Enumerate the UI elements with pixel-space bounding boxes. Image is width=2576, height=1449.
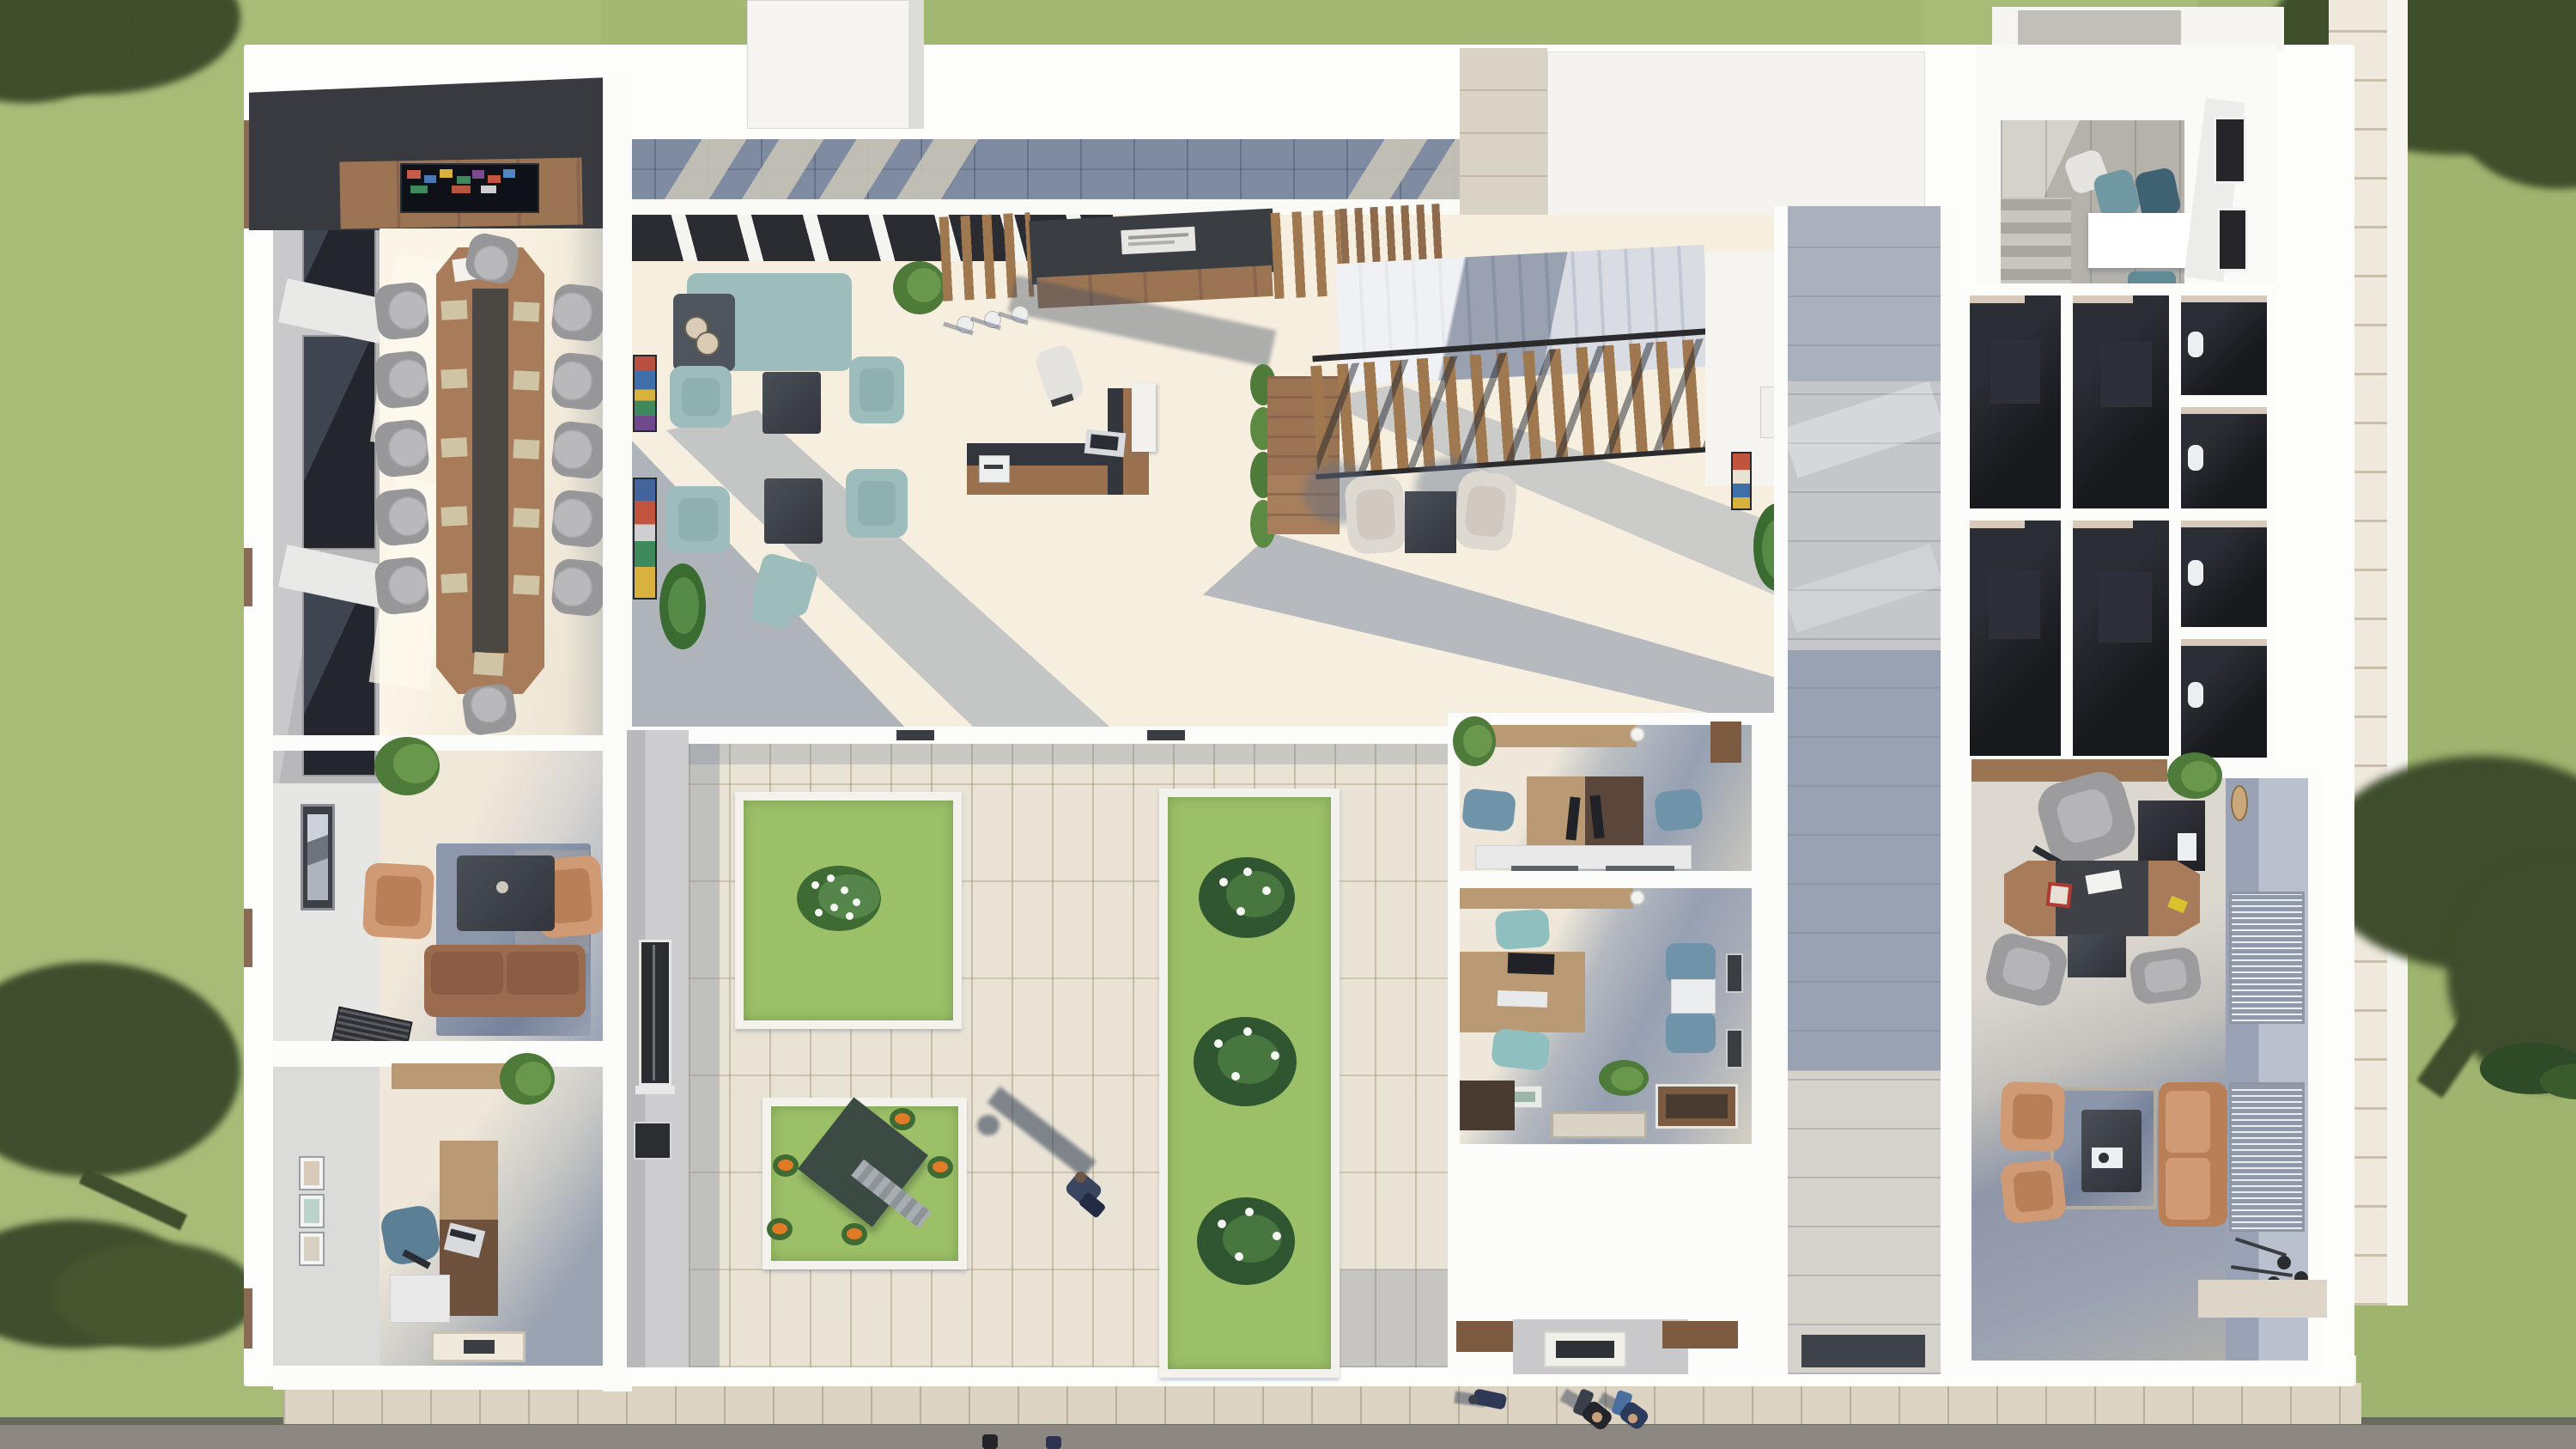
west-facade-wood-strip [244, 548, 252, 606]
office2-wood-beam [1460, 888, 1633, 909]
toilet [2188, 682, 2203, 708]
wall-frame-art [304, 1161, 319, 1185]
lily-petal [1218, 1220, 1226, 1228]
sofa-cushion [2166, 1158, 2210, 1220]
wall-frame-art [304, 1237, 319, 1261]
water-dispenser [2178, 833, 2196, 861]
office2-ac-front [1513, 1092, 1535, 1102]
dark-room-floor-sliver [2073, 295, 2133, 303]
daisy [811, 881, 819, 889]
conference-chair [550, 420, 607, 480]
dark-room-shelf [2100, 342, 2152, 407]
guest-chair-blue [1666, 943, 1716, 984]
roof-slab [747, 0, 923, 129]
dark-room-shelf [1989, 570, 2040, 639]
lily-petal [1243, 1027, 1252, 1036]
table-pad [440, 300, 467, 320]
lily-petal [1262, 886, 1271, 895]
flower-bloom-orange [933, 1161, 948, 1172]
wall-art [633, 355, 657, 432]
conference-chair [460, 682, 518, 737]
sofa-cushion [431, 952, 503, 995]
entry-mat-inner [464, 1340, 495, 1354]
wall-frame [1726, 953, 1743, 993]
mid-offices-wall [1460, 871, 1752, 888]
conference-chair [550, 351, 607, 411]
tv-thumbnail [488, 175, 501, 183]
wood-planter-box [1456, 1321, 1513, 1352]
table-pad [513, 439, 539, 460]
floor-plan-render [0, 0, 2576, 1449]
wall-frame-art [304, 1199, 319, 1223]
tree-shadow-left [52, 1242, 258, 1349]
pedestrian-head [1468, 1395, 1478, 1404]
lily-foliage [1226, 871, 1285, 917]
planter-soil [1666, 1094, 1728, 1118]
stairwell-window [2217, 208, 2248, 271]
office2-plant [1611, 1067, 1643, 1091]
courtyard-shade [689, 744, 720, 1367]
tv-thumbnail [472, 170, 484, 179]
armchair-tan-seat [2012, 1093, 2053, 1140]
conference-chair [374, 418, 430, 478]
daisy [853, 898, 860, 906]
wc-floor-sliver [2181, 295, 2267, 302]
tv-thumbnail [452, 186, 471, 193]
table-pad [513, 575, 539, 595]
table-pad [513, 301, 539, 322]
desk-tray [1498, 990, 1548, 1008]
west-window [302, 335, 376, 550]
printer-slot [984, 465, 1003, 469]
table-pad [440, 506, 467, 527]
table-lamp [696, 332, 720, 356]
tv-thumbnail [410, 186, 428, 193]
door-threshold [896, 730, 934, 740]
courtyard-wall-window [639, 940, 671, 1086]
office2-cabinet [1460, 1081, 1515, 1130]
pedestrian-partial [1046, 1436, 1061, 1449]
wall-conference-lounge [273, 735, 603, 751]
west-facade-wood-strip [244, 1288, 252, 1349]
dark-room-floor-sliver [2073, 521, 2133, 528]
lily-petal [1214, 1039, 1223, 1048]
corridor-mat [1801, 1335, 1925, 1367]
entry-mat [1551, 1111, 1647, 1139]
pedestrian-partial [982, 1434, 998, 1449]
sofa-cushion [507, 952, 579, 995]
table-pad [440, 437, 467, 458]
exec-exterior-tiles [2198, 1280, 2327, 1318]
wall-art [633, 478, 657, 600]
floor-lamp-base [2277, 1256, 2291, 1269]
toilet [2188, 445, 2203, 471]
corridor-east-wall [1941, 206, 1959, 1374]
pedestrian-head [1592, 1412, 1602, 1422]
office-chair-teal [1495, 909, 1551, 950]
table-pad [513, 508, 539, 528]
conference-table-channel [472, 289, 508, 653]
window-sill [635, 1086, 675, 1094]
window-blinds [2229, 1082, 2305, 1232]
daisy [846, 912, 854, 920]
tv-thumbnail [440, 169, 453, 178]
lily-petal [1235, 1252, 1243, 1261]
office-chair-blue [1461, 788, 1516, 832]
wc-floor-sliver [2181, 639, 2267, 646]
tv-thumbnail [407, 170, 421, 179]
flower-bloom-orange [847, 1228, 862, 1239]
armchair-cream-seat [1464, 484, 1507, 538]
daisy [830, 904, 838, 911]
conference-chair [374, 556, 430, 616]
exec-credenza [1971, 759, 2167, 782]
wc-floor-sliver [2181, 407, 2267, 414]
wall-frame [1726, 1029, 1743, 1068]
office1-wall-cabinet [1710, 721, 1741, 763]
conference-chair [550, 489, 607, 549]
pergola-slats [1270, 210, 1343, 299]
dark-room-shelf [1990, 340, 2040, 404]
window-mullion [653, 945, 655, 1081]
lounge-coffee-table [457, 855, 555, 931]
small-office-plant [515, 1062, 551, 1096]
toilet [2188, 560, 2203, 586]
desk-book-pages [2050, 886, 2069, 904]
flower-bloom-orange [772, 1223, 787, 1234]
table-pad [473, 652, 504, 676]
side-table [1671, 979, 1716, 1014]
stairwell-balcony-slab [2088, 213, 2196, 268]
lobby-coffee-table [764, 478, 823, 544]
dark-room-floor-sliver [1970, 295, 2025, 303]
small-office-cabinet [390, 1275, 450, 1323]
office-chair-blue [1654, 788, 1704, 831]
lily-petal [1271, 1051, 1279, 1060]
corridor-floor [1786, 206, 1941, 1374]
guest-chair-blue [1666, 1012, 1716, 1053]
tv-thumbnail [503, 169, 515, 178]
wall-lobby-courtyard [632, 727, 1465, 744]
armchair-teal-seat [858, 481, 896, 526]
lily-petal [1236, 907, 1245, 916]
desk-monitor [1508, 953, 1555, 975]
office-chair-teal [1491, 1028, 1551, 1072]
lily-foliage [1218, 1034, 1279, 1084]
wall-plant [668, 577, 699, 634]
conference-chair [550, 557, 607, 618]
pedestrian-head [1628, 1414, 1637, 1423]
west-facade-wood-strip [244, 909, 252, 967]
conference-chair [550, 283, 607, 343]
reception-monitor-screen [1090, 434, 1118, 450]
armchair-teal-seat [682, 378, 720, 416]
lily-petal [1219, 878, 1228, 886]
roof-slab-edge [908, 0, 924, 129]
east-path-edge [2387, 0, 2408, 1306]
reception-partition [1132, 383, 1156, 452]
reception-printer [979, 455, 1010, 483]
wall-mirror-oval [2231, 785, 2248, 821]
daisy [827, 874, 835, 882]
lobby-plant [907, 268, 941, 302]
daisy [815, 909, 823, 916]
sofa-cushion [2166, 1091, 2210, 1153]
lily-petal [1243, 868, 1252, 876]
roof-slab [1547, 52, 1925, 228]
exec-plant [2181, 761, 2217, 792]
table-pad [440, 368, 467, 389]
wood-planter-box [1662, 1321, 1738, 1349]
courtyard-shade [689, 744, 1448, 764]
tv-thumbnail [424, 175, 436, 183]
courtyard-wall-window [634, 1122, 671, 1160]
office1-plant [1463, 725, 1492, 758]
person-shadow-head [977, 1115, 999, 1135]
pendant-lamp [1630, 890, 1645, 905]
conference-chair [374, 281, 430, 341]
armchair-cream-seat [1355, 489, 1396, 541]
armchair-tan-seat [375, 875, 422, 928]
table-pad [440, 573, 467, 594]
tv-thumbnail [481, 186, 496, 193]
table-pad [513, 370, 539, 391]
stairwell-window [2214, 117, 2246, 184]
lily-petal [1245, 1208, 1254, 1216]
dark-room-shelf [2099, 572, 2152, 642]
toilet [2188, 332, 2203, 357]
flower-bloom-orange [895, 1113, 910, 1124]
wall-art [1731, 452, 1752, 510]
wc-floor-sliver [2181, 521, 2267, 527]
side-table-dark [2068, 935, 2126, 977]
armchair-teal-seat [860, 368, 894, 411]
dark-room-floor-sliver [1970, 521, 2025, 528]
guest-chair-seat [2143, 958, 2189, 994]
lobby-coffee-table [762, 372, 821, 434]
lily-petal [1273, 1232, 1281, 1240]
lily-petal [1231, 1072, 1240, 1081]
tray-item [2099, 1153, 2109, 1163]
stairs-side-table [1405, 491, 1456, 553]
door-threshold [1147, 730, 1185, 740]
corridor-west-wall [1774, 206, 1788, 1374]
lounge-plant [393, 744, 438, 783]
conference-chair [374, 487, 430, 547]
lily-foliage [1223, 1215, 1281, 1263]
lounge-picture-art [307, 814, 328, 900]
armchair-tan-seat [2013, 1170, 2055, 1213]
road [0, 1424, 2576, 1449]
conference-chair [374, 350, 430, 410]
lounge-table-knob [496, 881, 508, 893]
armchair-teal-seat [678, 498, 718, 541]
tv-thumbnail [457, 176, 471, 184]
person-head [1075, 1172, 1086, 1183]
entrance-mat-inner [1556, 1341, 1614, 1358]
daisy [841, 886, 848, 894]
pendant-lamp [1630, 727, 1645, 742]
window-blinds [2229, 892, 2305, 1024]
stairwell-upper-steps [2001, 198, 2071, 292]
flower-bloom-orange [778, 1160, 793, 1171]
left-wing-base-wall [273, 1366, 603, 1390]
west-wall-office [273, 1067, 380, 1369]
